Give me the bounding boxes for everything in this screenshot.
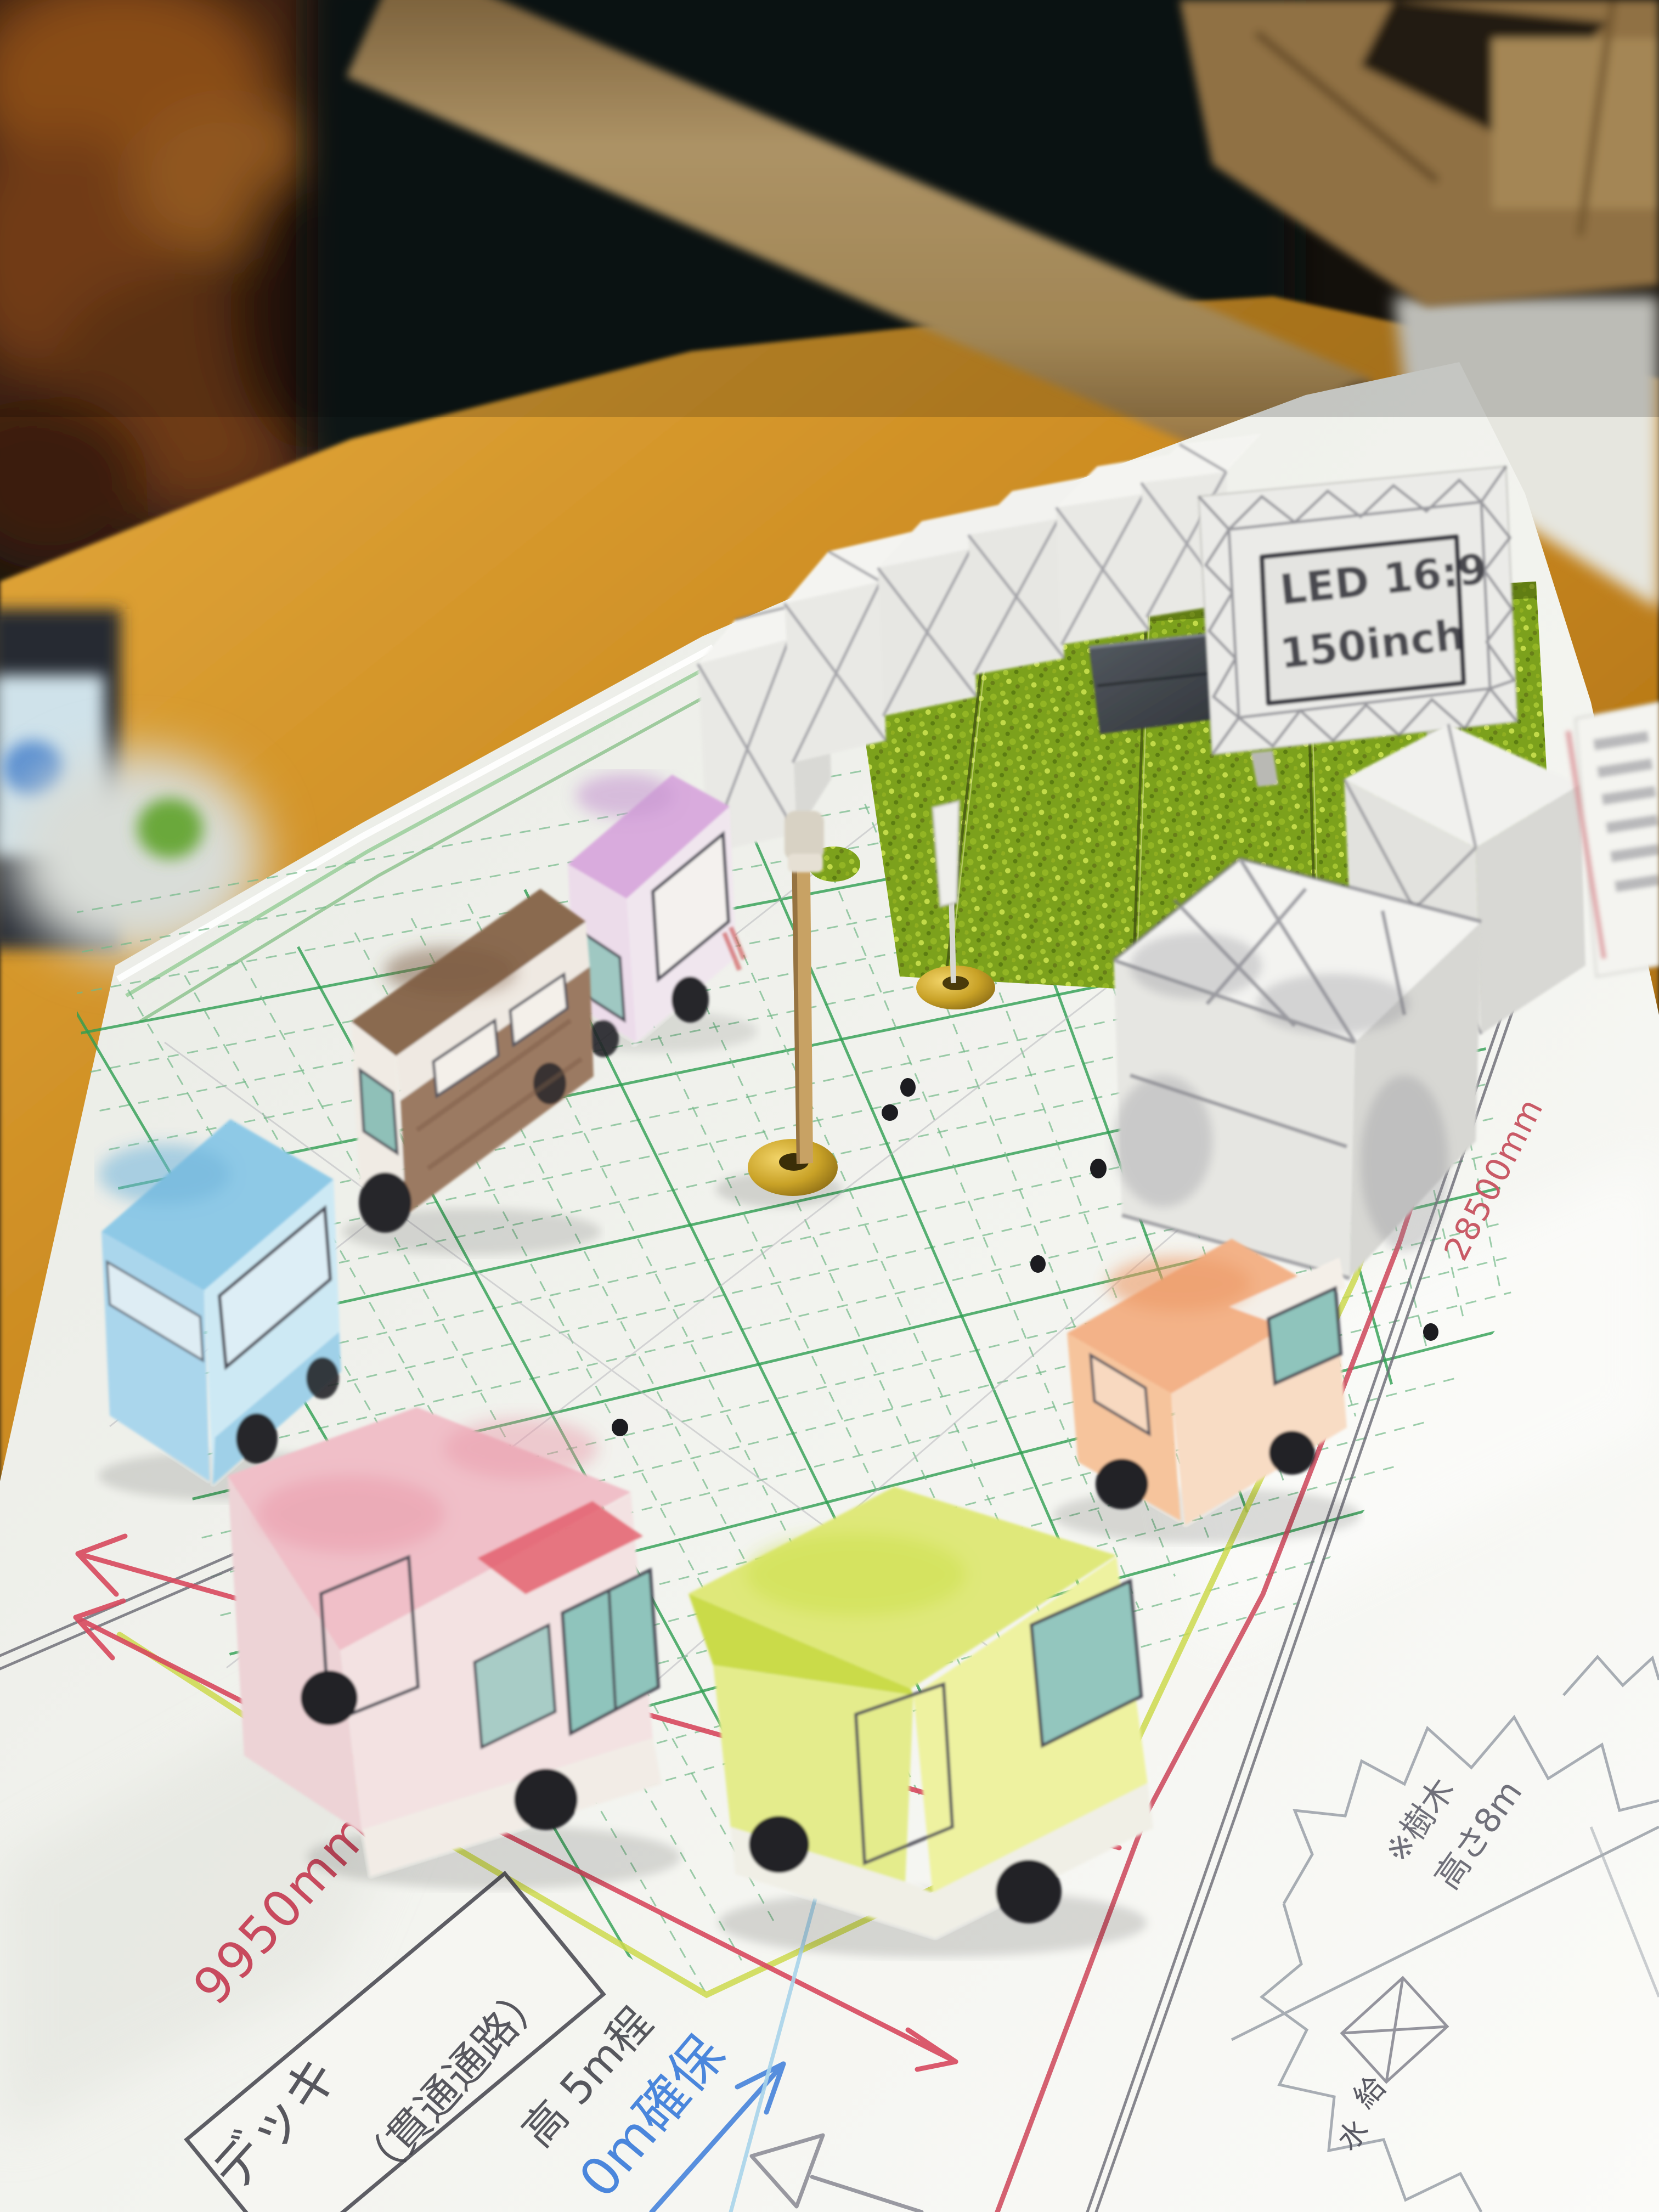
tape-wrap [785,811,824,872]
foam-block-large [1114,859,1481,1278]
photo-vignette [0,0,1659,417]
scene-canvas: デッキ （貫通通路） 高 5m程 9950mm 0m確保 ※樹木 高さ8m 給 … [0,0,1659,2212]
photo-miniature-site-model: デッキ （貫通通路） 高 5m程 9950mm 0m確保 ※樹木 高さ8m 給 … [0,0,1659,2212]
green-blob [137,798,203,859]
